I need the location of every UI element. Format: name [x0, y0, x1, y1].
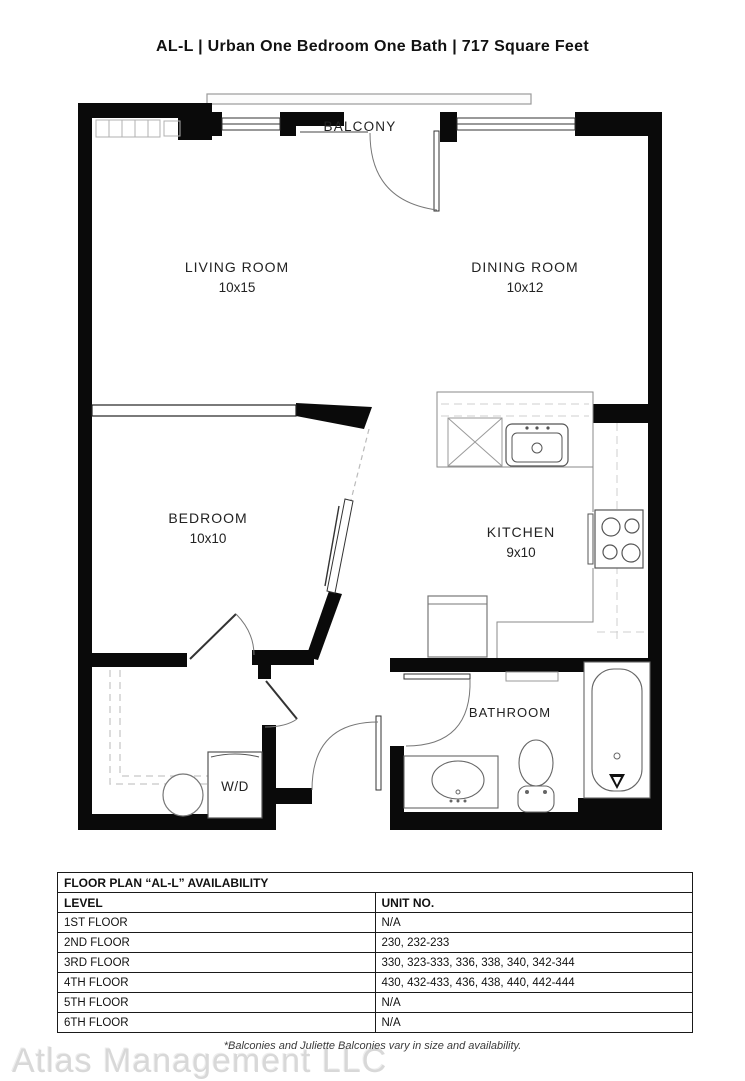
table-title: FLOOR PLAN “AL-L” AVAILABILITY: [58, 873, 693, 893]
bathroom-door: [404, 674, 470, 746]
table-row: 3RD FLOOR 330, 323-333, 336, 338, 340, 3…: [58, 953, 693, 973]
balcony-door: [300, 131, 439, 211]
living-room-label: LIVING ROOM: [185, 259, 289, 275]
floor-plan: W/D: [0, 0, 745, 860]
table-row: 4TH FLOOR 430, 432-433, 436, 438, 440, 4…: [58, 973, 693, 993]
entry-door: [312, 716, 381, 790]
bedroom-door: [190, 614, 254, 659]
laundry-label: W/D: [221, 779, 249, 794]
kitchen-label: KITCHEN: [487, 524, 555, 540]
toilet: [518, 740, 554, 812]
availability-table: FLOOR PLAN “AL-L” AVAILABILITY LEVEL UNI…: [57, 872, 693, 1033]
partition-wall: [92, 405, 296, 416]
unit-cell: 230, 232-233: [375, 933, 693, 953]
refrigerator: [428, 596, 487, 657]
window-right: [457, 118, 575, 130]
table-row: 1ST FLOOR N/A: [58, 913, 693, 933]
kitchen-dims: 9x10: [506, 545, 535, 560]
wall-niche: [506, 672, 558, 681]
bathroom-label: BATHROOM: [469, 705, 551, 720]
table-header-row: LEVEL UNIT NO.: [58, 893, 693, 913]
unit-cell: N/A: [375, 1013, 693, 1033]
balcony-label: BALCONY: [324, 119, 397, 134]
bedroom-label: BEDROOM: [168, 510, 247, 526]
sliding-door: [325, 429, 369, 593]
kitchen-sink: [506, 424, 568, 466]
table-row: 6TH FLOOR N/A: [58, 1013, 693, 1033]
living-room-dims: 10x15: [219, 280, 256, 295]
dining-room-label: DINING ROOM: [471, 259, 578, 275]
window-left: [222, 118, 280, 130]
level-cell: 6TH FLOOR: [58, 1013, 376, 1033]
bedroom-dims: 10x10: [190, 531, 227, 546]
table-row: 5TH FLOOR N/A: [58, 993, 693, 1013]
level-cell: 3RD FLOOR: [58, 953, 376, 973]
unit-cell: 330, 323-333, 336, 338, 340, 342-344: [375, 953, 693, 973]
vanity-sink: [404, 756, 498, 808]
level-cell: 5TH FLOOR: [58, 993, 376, 1013]
unit-cell: N/A: [375, 993, 693, 1013]
dining-room-dims: 10x12: [507, 280, 544, 295]
bathtub: [584, 662, 650, 798]
baseboard-heater: [96, 120, 180, 137]
unit-cell: 430, 432-433, 436, 438, 440, 442-444: [375, 973, 693, 993]
level-cell: 2ND FLOOR: [58, 933, 376, 953]
closet-door: [265, 681, 297, 727]
table-title-row: FLOOR PLAN “AL-L” AVAILABILITY: [58, 873, 693, 893]
level-cell: 4TH FLOOR: [58, 973, 376, 993]
unit-cell: N/A: [375, 913, 693, 933]
column-header-level: LEVEL: [58, 893, 376, 913]
level-cell: 1ST FLOOR: [58, 913, 376, 933]
water-heater: [163, 774, 203, 816]
balcony-disclaimer: *Balconies and Juliette Balconies vary i…: [0, 1040, 745, 1052]
balcony-railing: [207, 94, 531, 104]
column-header-unit: UNIT NO.: [375, 893, 693, 913]
stove: [588, 510, 643, 568]
table-row: 2ND FLOOR 230, 232-233: [58, 933, 693, 953]
